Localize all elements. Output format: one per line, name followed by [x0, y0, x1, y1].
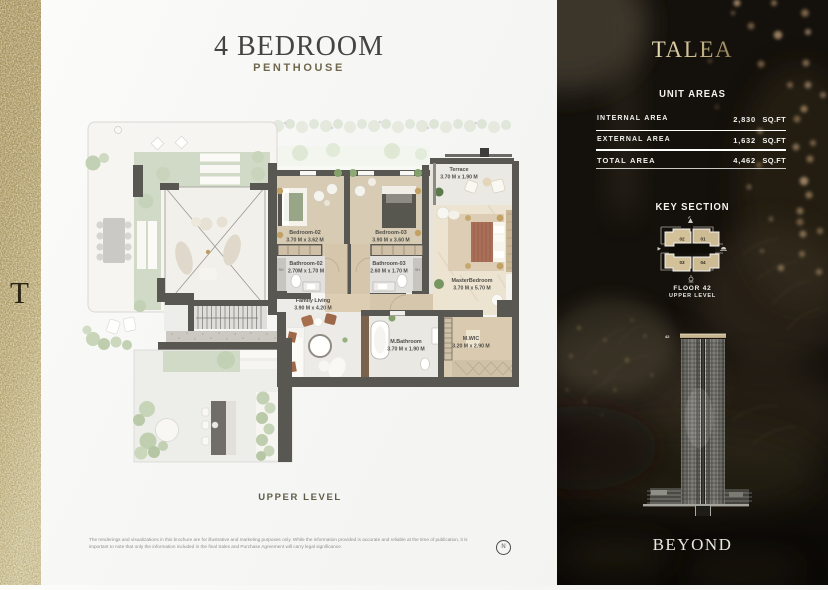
svg-text:Bedroom-02: Bedroom-02: [289, 230, 320, 236]
svg-text:04: 04: [700, 260, 706, 265]
svg-text:2.70M x 1.70 M: 2.70M x 1.70 M: [288, 269, 324, 275]
svg-text:3.90 M x 4.20 M: 3.90 M x 4.20 M: [294, 306, 332, 312]
svg-text:M.WIC: M.WIC: [463, 336, 480, 342]
svg-text:3.20 M x 2.90 M: 3.20 M x 2.90 M: [452, 344, 490, 350]
svg-text:Bathroom-02: Bathroom-02: [289, 261, 322, 267]
svg-text:MasterBedroom: MasterBedroom: [451, 278, 492, 284]
svg-text:3.70 M x 5.70 M: 3.70 M x 5.70 M: [453, 286, 491, 292]
svg-text:Family Living: Family Living: [296, 298, 330, 304]
svg-text:M.Bathroom: M.Bathroom: [390, 339, 422, 345]
svg-text:2.60 M x 1.70 M: 2.60 M x 1.70 M: [370, 269, 408, 275]
svg-text:Bathroom-03: Bathroom-03: [372, 261, 405, 267]
svg-text:3.90 M x 3.60 M: 3.90 M x 3.60 M: [372, 238, 410, 244]
svg-text:02: 02: [679, 237, 685, 242]
svg-text:Terrace: Terrace: [449, 167, 468, 173]
svg-text:SH: SH: [279, 268, 284, 272]
svg-text:3.70 M x 3.62 M: 3.70 M x 3.62 M: [286, 238, 324, 244]
svg-text:SH: SH: [415, 268, 420, 272]
svg-text:03: 03: [679, 260, 685, 265]
svg-text:3.70 M x 1.90 M: 3.70 M x 1.90 M: [387, 347, 425, 353]
svg-text:01: 01: [700, 237, 706, 242]
svg-text:3.70 M x 1.90 M: 3.70 M x 1.90 M: [440, 175, 478, 181]
svg-text:Bedroom-03: Bedroom-03: [375, 230, 406, 236]
svg-text:42: 42: [665, 334, 670, 339]
